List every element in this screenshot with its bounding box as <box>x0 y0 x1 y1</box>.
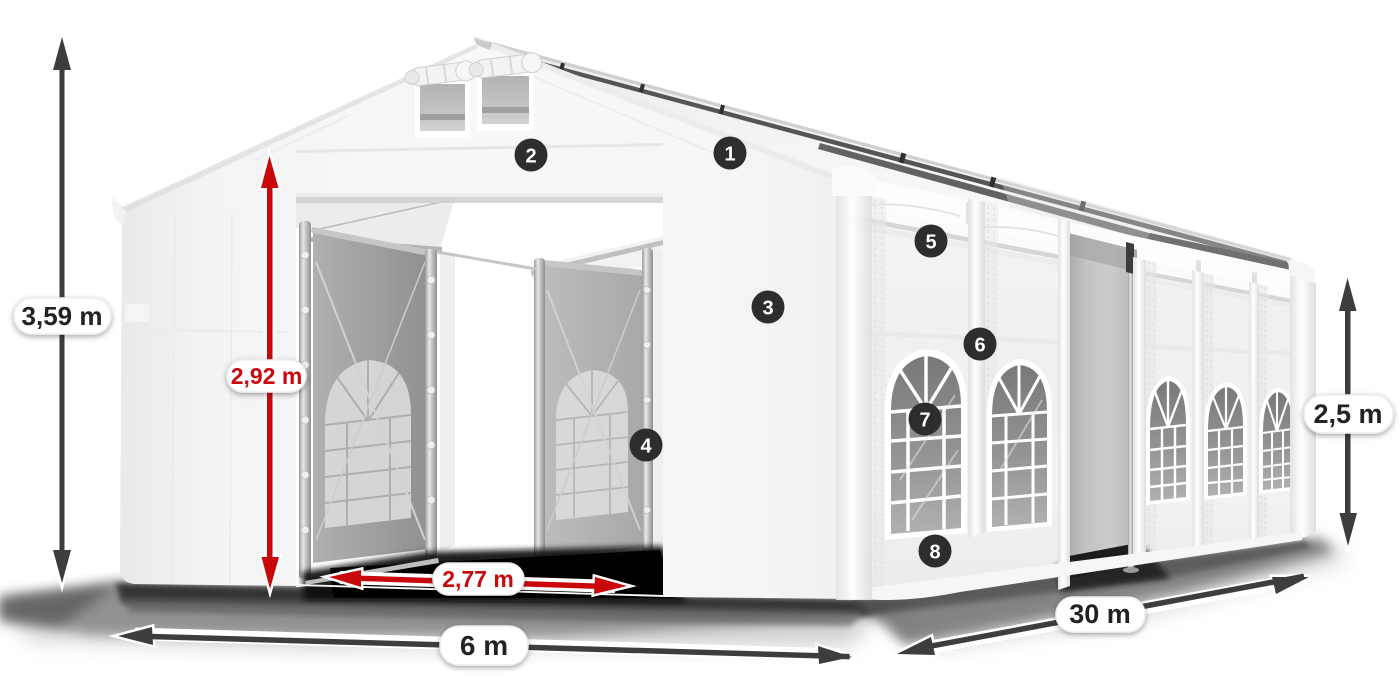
svg-text:2: 2 <box>525 146 536 168</box>
svg-text:2,77 m: 2,77 m <box>442 566 514 592</box>
svg-text:8: 8 <box>929 542 940 564</box>
svg-text:1: 1 <box>724 144 735 166</box>
svg-text:3: 3 <box>762 298 773 320</box>
svg-text:7: 7 <box>919 410 930 432</box>
svg-text:5: 5 <box>925 232 936 254</box>
svg-text:3,59 m: 3,59 m <box>22 301 103 331</box>
svg-text:6 m: 6 m <box>460 630 508 661</box>
svg-text:30 m: 30 m <box>1069 599 1131 629</box>
svg-text:6: 6 <box>974 335 985 357</box>
svg-text:4: 4 <box>640 436 652 458</box>
svg-text:2,5 m: 2,5 m <box>1313 399 1382 429</box>
svg-text:2,92 m: 2,92 m <box>231 363 303 389</box>
